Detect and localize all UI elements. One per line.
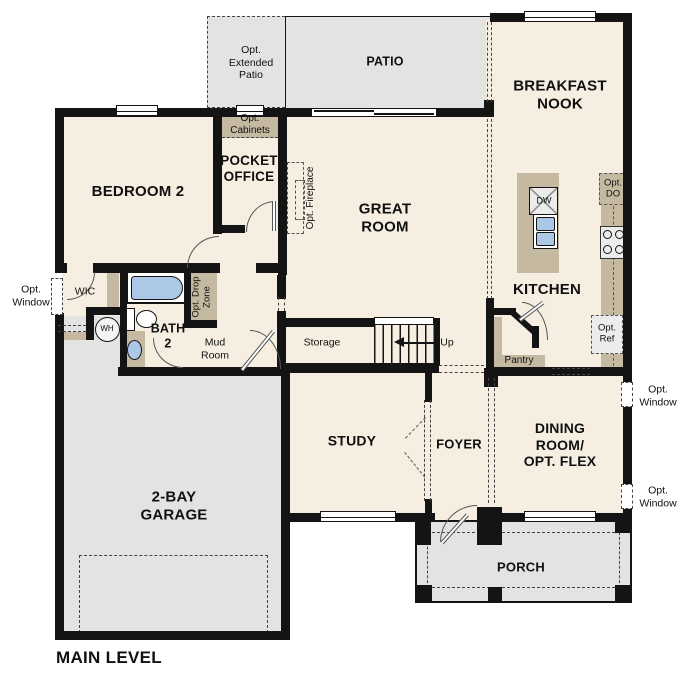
cooktop-burner — [603, 245, 612, 254]
label-opt-window: Opt. Window — [639, 484, 676, 509]
wall — [415, 513, 431, 545]
room-label-foyer: FOYER — [436, 436, 482, 451]
sliding-door-panel — [374, 113, 434, 115]
room-label-patio: PATIO — [366, 55, 403, 70]
cooktop-burner — [603, 230, 612, 239]
wall — [256, 263, 278, 273]
wall — [55, 330, 64, 640]
room-label-mud-room: Mud Room — [201, 336, 229, 361]
wall — [486, 298, 494, 376]
label-opt-drop-zone: Opt. Drop Zone — [191, 269, 214, 325]
wall — [86, 307, 94, 340]
room-label-bath2: BATH 2 — [151, 321, 186, 351]
wall — [55, 263, 67, 273]
floor-plan: BEDROOM 2 POCKET OFFICE GREAT ROOM BREAK… — [0, 0, 687, 687]
cased-opening — [424, 400, 431, 501]
label-opt-window: Opt. Window — [639, 383, 676, 408]
cased-opening — [278, 297, 285, 311]
label-opt-double-oven: Opt. DO — [604, 178, 622, 201]
opt-fireplace-hearth — [295, 180, 305, 220]
room-label-kitchen: KITCHEN — [513, 281, 581, 299]
plan-title: MAIN LEVEL — [56, 648, 162, 668]
vanity-sink — [127, 340, 142, 360]
label-water-heater: WH — [100, 324, 113, 334]
stairs-handrail — [374, 317, 434, 325]
label-opt-extended-patio: Opt. Extended Patio — [229, 44, 273, 82]
label-opt-window: Opt. Window — [12, 283, 49, 308]
window — [524, 511, 596, 522]
wall — [477, 507, 502, 545]
window — [320, 511, 396, 522]
label-opt-refrigerator: Opt. Ref — [598, 323, 616, 346]
label-dishwasher: DW — [537, 196, 552, 207]
stairs-arrow-head — [394, 337, 404, 347]
wall — [55, 108, 64, 270]
cased-opening — [488, 378, 495, 503]
cased-opening — [58, 325, 86, 332]
room-label-dining: DINING ROOM/ OPT. FLEX — [524, 420, 597, 470]
room-label-pocket-office: POCKET OFFICE — [220, 153, 277, 185]
room-label-study: STUDY — [328, 433, 376, 450]
window — [524, 11, 596, 22]
wall — [120, 268, 127, 375]
cased-opening — [439, 365, 484, 373]
wall — [277, 275, 286, 299]
opt-window — [621, 484, 633, 509]
room-label-breakfast-nook: BREAKFAST NOOK — [513, 77, 606, 112]
wall — [215, 225, 245, 233]
label-stairs-up: Up — [440, 337, 453, 350]
room-label-garage: 2-BAY GARAGE — [140, 488, 207, 523]
wall — [281, 367, 290, 640]
room-divider-dashed — [487, 119, 492, 299]
bathtub-basin — [131, 276, 183, 300]
wall — [277, 318, 375, 327]
porch-post — [415, 585, 432, 603]
porch-post — [615, 585, 632, 603]
room-label-wic: WIC — [75, 286, 95, 299]
label-opt-fireplace: Opt. Fireplace — [305, 158, 317, 238]
garage-door-dashed — [79, 555, 268, 633]
room-label-storage: Storage — [304, 337, 341, 350]
room-label-pantry: Pantry — [505, 355, 534, 367]
stairs-treads — [374, 325, 434, 364]
island-sink-basin — [536, 232, 555, 246]
room-label-bedroom2: BEDROOM 2 — [92, 183, 185, 201]
window — [116, 105, 158, 116]
stairs-arrow-line — [404, 342, 436, 344]
wall — [55, 631, 290, 640]
wall — [283, 363, 439, 373]
cased-opening — [552, 368, 590, 375]
room-label-porch: PORCH — [497, 559, 545, 574]
room-label-great-room: GREAT ROOM — [359, 200, 411, 235]
porch-post — [488, 587, 502, 601]
opening-dashed — [487, 22, 492, 102]
pantry-shelf-left — [494, 317, 502, 357]
wall — [278, 113, 287, 275]
label-opt-cabinets: Opt. Cabinets — [230, 113, 269, 137]
island-sink-basin — [536, 217, 555, 231]
opt-window — [51, 278, 63, 315]
sliding-door-panel — [314, 110, 374, 112]
opt-window — [621, 382, 633, 407]
door-leaf — [272, 201, 276, 231]
wall — [425, 373, 432, 402]
wall — [623, 13, 632, 522]
wall — [484, 100, 494, 117]
